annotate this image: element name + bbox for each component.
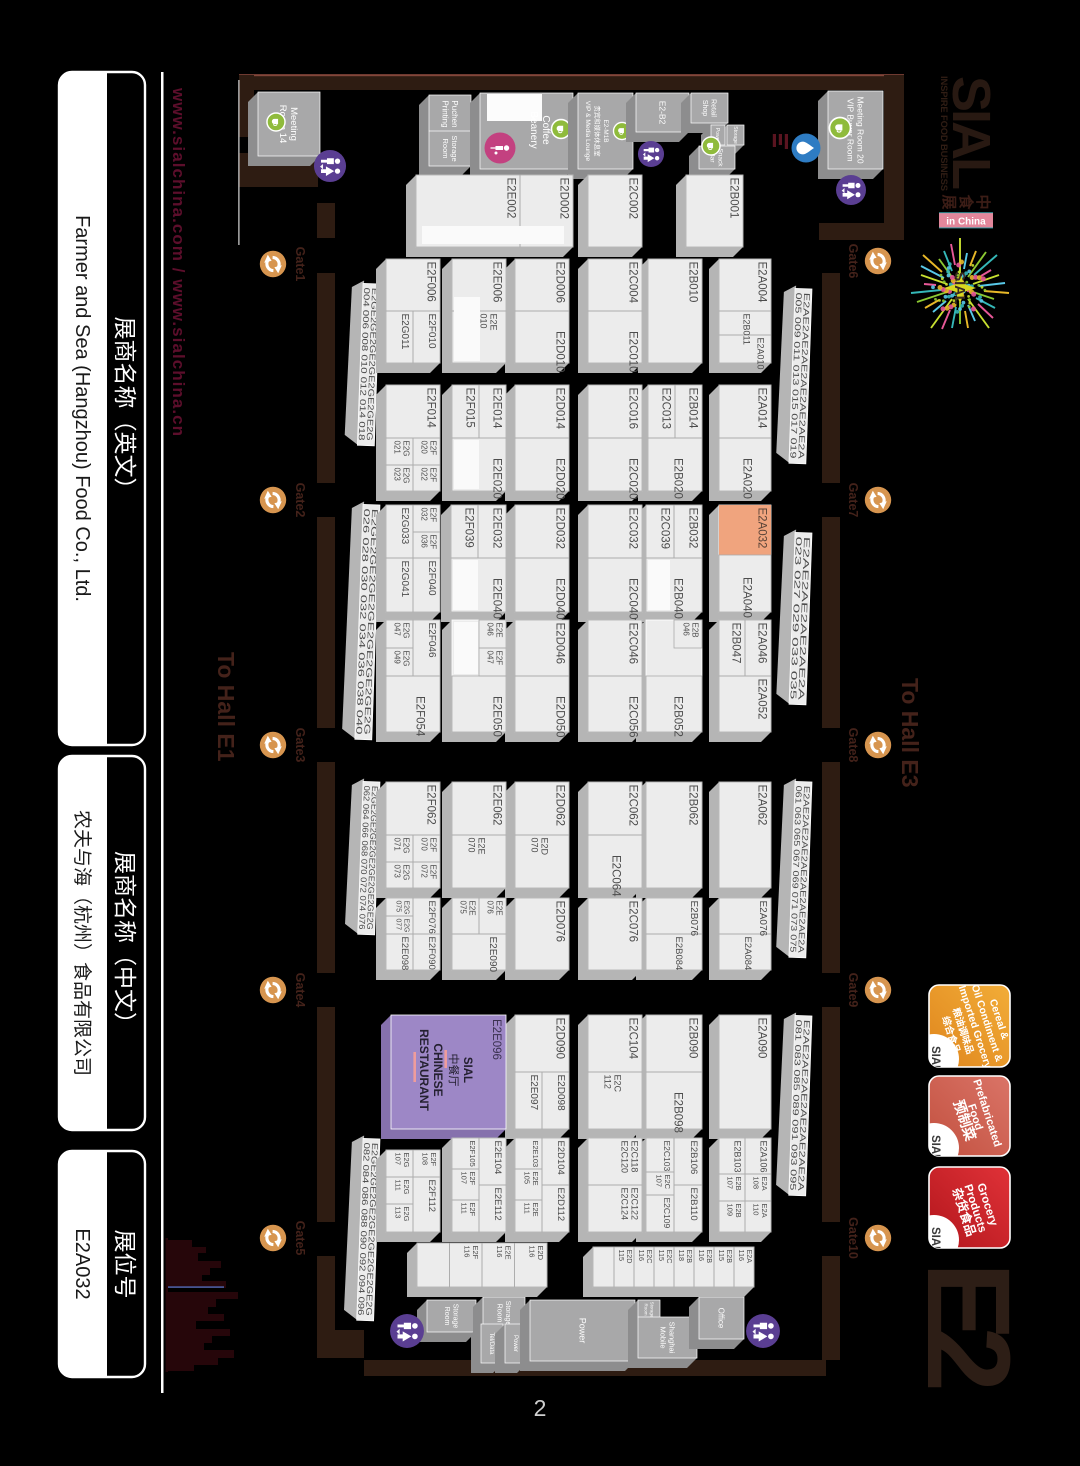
svg-text:E2E098: E2E098 <box>399 937 410 971</box>
svg-text:E2B098: E2B098 <box>672 1092 684 1133</box>
svg-text:SIAL: SIAL <box>951 271 967 304</box>
svg-text:110: 110 <box>751 1204 760 1216</box>
svg-text:E2E040: E2E040 <box>491 578 503 619</box>
svg-text:118: 118 <box>677 1250 686 1261</box>
svg-text:116: 116 <box>462 1246 471 1258</box>
svg-text:E2C040: E2C040 <box>627 578 639 620</box>
svg-text:E2B040: E2B040 <box>672 578 684 619</box>
svg-text:112: 112 <box>603 1075 613 1089</box>
svg-text:E2F039: E2F039 <box>463 508 475 548</box>
svg-text:食: 食 <box>957 194 975 210</box>
svg-text:010: 010 <box>479 314 489 329</box>
svg-text:E2C016: E2C016 <box>627 388 639 430</box>
svg-text:E2D046: E2D046 <box>554 623 566 665</box>
svg-text:070: 070 <box>419 838 428 852</box>
svg-text:E2A014: E2A014 <box>756 388 768 430</box>
svg-text:Gate1: Gate1 <box>293 247 307 282</box>
svg-text:2: 2 <box>534 1395 547 1421</box>
svg-text:Gate7: Gate7 <box>846 483 860 518</box>
svg-text:E2D112: E2D112 <box>555 1188 566 1222</box>
svg-text:023: 023 <box>392 468 401 482</box>
svg-text:020: 020 <box>419 441 428 455</box>
svg-text:E2C122: E2C122 <box>630 1188 640 1221</box>
svg-text:E2G: E2G <box>401 441 410 457</box>
svg-text:E2C076: E2C076 <box>627 901 639 943</box>
svg-text:E2D006: E2D006 <box>554 262 566 304</box>
svg-text:E2F090: E2F090 <box>426 937 437 970</box>
svg-text:E2G041: E2G041 <box>399 561 410 598</box>
svg-text:E2B: E2B <box>690 623 699 638</box>
svg-text:E2E006: E2E006 <box>491 262 503 303</box>
svg-text:E2D020: E2D020 <box>554 458 566 500</box>
svg-text:Power: Power <box>512 1335 518 1352</box>
svg-text:E2E112: E2E112 <box>492 1188 503 1221</box>
svg-text:E2A046: E2A046 <box>756 623 768 664</box>
svg-text:E2F014: E2F014 <box>425 388 437 429</box>
svg-text:E2G033: E2G033 <box>399 508 410 545</box>
svg-text:E2E032: E2E032 <box>491 508 503 549</box>
svg-text:INSPIRE FOOD BUSINESS: INSPIRE FOOD BUSINESS <box>939 76 950 191</box>
svg-text:E2G: E2G <box>401 651 410 667</box>
svg-text:049: 049 <box>392 651 401 665</box>
svg-text:071: 071 <box>392 838 401 852</box>
svg-text:展商名称（英文）: 展商名称（英文） <box>112 317 138 501</box>
svg-text:E2C104: E2C104 <box>627 1018 639 1060</box>
svg-text:VIP & Media Lounge: VIP & Media Lounge <box>584 101 591 162</box>
svg-text:107: 107 <box>725 1177 734 1190</box>
svg-text:Storage: Storage <box>451 1304 458 1329</box>
svg-text:E2E104: E2E104 <box>492 1141 503 1175</box>
svg-text:E2C004: E2C004 <box>627 262 639 304</box>
svg-text:E2G011: E2G011 <box>399 314 410 350</box>
svg-text:Shanghai: Shanghai <box>667 1322 676 1354</box>
svg-text:E2B047: E2B047 <box>730 623 742 664</box>
svg-text:116: 116 <box>737 1250 746 1261</box>
svg-text:展: 展 <box>940 194 957 209</box>
svg-text:E2G: E2G <box>402 901 409 915</box>
svg-text:Room: Room <box>643 1303 648 1315</box>
svg-text:Gate2: Gate2 <box>293 483 307 518</box>
svg-text:021: 021 <box>392 441 401 455</box>
svg-text:E2F: E2F <box>428 468 437 483</box>
svg-text:E2B090: E2B090 <box>687 1018 699 1059</box>
svg-text:E2D076: E2D076 <box>554 901 566 943</box>
svg-text:E2C062: E2C062 <box>627 785 639 827</box>
svg-text:Power: Power <box>577 1318 587 1344</box>
svg-text:Gate8: Gate8 <box>846 728 860 763</box>
svg-text:Gate9: Gate9 <box>846 973 860 1008</box>
svg-text:076: 076 <box>485 901 494 915</box>
svg-text:E2B110: E2B110 <box>688 1188 699 1221</box>
svg-text:E2F046: E2F046 <box>426 623 437 658</box>
svg-text:展商名称（中文）: 展商名称（中文） <box>112 851 138 1035</box>
svg-text:E2E090: E2E090 <box>487 937 498 973</box>
svg-text:Mobile: Mobile <box>658 1326 667 1348</box>
svg-text:E2C046: E2C046 <box>627 623 639 665</box>
svg-text:E2F040: E2F040 <box>426 561 437 596</box>
svg-text:贵宾和媒体休息室: 贵宾和媒体休息室 <box>593 105 602 157</box>
svg-text:E2C010: E2C010 <box>627 331 639 373</box>
svg-text:111: 111 <box>459 1203 468 1214</box>
svg-text:E2B010: E2B010 <box>687 262 699 303</box>
svg-text:Gate4: Gate4 <box>293 973 307 1008</box>
svg-text:CHINESE: CHINESE <box>431 1043 445 1096</box>
svg-text:E2F054: E2F054 <box>414 696 426 737</box>
svg-text:Storage: Storage <box>504 1301 511 1326</box>
svg-text:Retail: Retail <box>709 99 716 117</box>
svg-text:农夫与海（杭州）食品有限公司: 农夫与海（杭州）食品有限公司 <box>71 810 93 1076</box>
svg-text:E2A032: E2A032 <box>71 1228 93 1299</box>
svg-text:075: 075 <box>394 901 401 913</box>
svg-text:E2D090: E2D090 <box>554 1018 566 1060</box>
svg-text:E2D040: E2D040 <box>554 578 566 620</box>
svg-text:E2F112: E2F112 <box>426 1180 437 1213</box>
svg-text:077: 077 <box>394 919 401 931</box>
svg-text:Beanery: Beanery <box>528 111 539 148</box>
svg-text:Shop: Shop <box>701 100 708 116</box>
svg-text:115: 115 <box>657 1250 666 1261</box>
svg-text:E2C064: E2C064 <box>610 855 622 897</box>
svg-text:073: 073 <box>392 865 401 879</box>
svg-text:E2C056: E2C056 <box>627 696 639 738</box>
svg-text:E2E014: E2E014 <box>491 388 503 430</box>
svg-text:E2C: E2C <box>613 1075 623 1093</box>
svg-text:E2C032: E2C032 <box>627 508 639 550</box>
svg-text:116: 116 <box>527 1246 536 1258</box>
svg-text:E2F: E2F <box>428 535 437 550</box>
svg-text:E2C109: E2C109 <box>662 1198 672 1229</box>
svg-text:111: 111 <box>393 1180 402 1191</box>
svg-text:E2D104: E2D104 <box>555 1141 566 1175</box>
svg-text:046: 046 <box>485 623 494 637</box>
svg-text:E2E020: E2E020 <box>491 458 503 499</box>
svg-text:Gate10: Gate10 <box>846 1217 860 1259</box>
svg-text:E2B103: E2B103 <box>733 1141 743 1173</box>
svg-text:070: 070 <box>467 838 477 853</box>
svg-text:E2A084: E2A084 <box>742 937 753 971</box>
svg-text:E2F015: E2F015 <box>464 388 476 428</box>
svg-text:Coffee: Coffee <box>540 115 551 145</box>
svg-text:E2G: E2G <box>401 865 410 881</box>
svg-text:E2-M1B: E2-M1B <box>602 119 609 142</box>
svg-text:E2C120: E2C120 <box>620 1141 630 1174</box>
svg-text:E2E: E2E <box>494 901 503 916</box>
svg-text:E2D: E2D <box>540 838 550 856</box>
svg-text:Storage: Storage <box>732 126 738 144</box>
svg-text:www.sialchina.com / www.sialch: www.sialchina.com / www.sialchina.cn <box>169 87 188 436</box>
svg-text:E2D050: E2D050 <box>554 696 566 738</box>
svg-text:Gate6: Gate6 <box>846 244 860 279</box>
svg-text:116: 116 <box>637 1250 646 1261</box>
svg-text:E2D062: E2D062 <box>554 785 566 827</box>
svg-text:E2E096: E2E096 <box>490 1019 502 1060</box>
svg-text:E2F: E2F <box>428 508 437 523</box>
svg-text:Tel/Data: Tel/Data <box>488 1332 494 1355</box>
svg-text:111: 111 <box>522 1203 531 1214</box>
svg-text:E2E050: E2E050 <box>491 696 503 737</box>
svg-text:E2B001: E2B001 <box>728 178 740 219</box>
svg-text:E2E: E2E <box>494 623 503 638</box>
svg-text:E2D002: E2D002 <box>558 178 570 220</box>
svg-text:E2G: E2G <box>402 919 409 933</box>
svg-text:E2G: E2G <box>401 468 410 484</box>
svg-text:E2D010: E2D010 <box>554 331 566 373</box>
svg-text:E2B106: E2B106 <box>688 1141 699 1175</box>
svg-text:E2B020: E2B020 <box>672 458 684 499</box>
svg-text:036: 036 <box>419 535 428 549</box>
svg-text:RESTAURANT: RESTAURANT <box>417 1029 431 1111</box>
svg-text:047: 047 <box>485 651 494 665</box>
svg-text:Printing: Printing <box>441 100 450 127</box>
svg-text:E2F: E2F <box>428 838 437 853</box>
svg-text:107: 107 <box>654 1175 663 1188</box>
svg-text:Storage: Storage <box>649 1302 654 1318</box>
svg-text:115: 115 <box>617 1250 626 1261</box>
svg-text:E2F006: E2F006 <box>425 262 437 302</box>
svg-text:E2F010: E2F010 <box>426 314 437 349</box>
svg-text:Office: Office <box>717 1308 726 1329</box>
svg-text:E2A062: E2A062 <box>756 785 768 826</box>
svg-text:115: 115 <box>717 1250 726 1261</box>
svg-text:109: 109 <box>725 1204 734 1217</box>
svg-text:E2A040: E2A040 <box>741 577 753 618</box>
svg-text:E2C103: E2C103 <box>662 1141 672 1172</box>
svg-text:E2A076: E2A076 <box>757 901 768 937</box>
svg-text:Room: Room <box>495 1304 502 1323</box>
svg-text:E2C124: E2C124 <box>620 1188 630 1221</box>
svg-text:E2A090: E2A090 <box>756 1018 768 1059</box>
svg-text:Room: Room <box>443 1307 450 1326</box>
svg-text:E2E103: E2E103 <box>531 1141 540 1168</box>
svg-text:E2B062: E2B062 <box>687 785 699 826</box>
svg-text:116: 116 <box>495 1246 504 1258</box>
svg-text:Puchen: Puchen <box>450 100 459 127</box>
svg-text:Gate5: Gate5 <box>293 1221 307 1256</box>
svg-text:046: 046 <box>681 623 690 637</box>
svg-text:E2C118: E2C118 <box>630 1141 640 1173</box>
svg-text:032: 032 <box>419 508 428 522</box>
svg-text:Meeting Room 20: Meeting Room 20 <box>856 96 866 163</box>
svg-text:116: 116 <box>697 1250 706 1261</box>
svg-text:070: 070 <box>530 838 540 853</box>
svg-text:E2B076: E2B076 <box>688 901 699 937</box>
svg-text:E2: E2 <box>902 1262 1034 1392</box>
svg-text:E2B052: E2B052 <box>672 696 684 737</box>
svg-text:E2C039: E2C039 <box>659 508 671 550</box>
svg-text:E2F: E2F <box>428 441 437 456</box>
svg-text:E2A004: E2A004 <box>756 262 768 304</box>
svg-text:中: 中 <box>974 194 992 209</box>
svg-text:E2D032: E2D032 <box>554 508 566 550</box>
svg-text:展位号: 展位号 <box>112 1230 138 1299</box>
svg-text:022: 022 <box>419 468 428 482</box>
svg-text:中餐厅: 中餐厅 <box>447 1054 461 1087</box>
svg-text:E2E: E2E <box>467 901 476 916</box>
svg-text:E2D098: E2D098 <box>555 1075 566 1112</box>
svg-text:E2B032: E2B032 <box>687 508 699 549</box>
svg-text:E2F062: E2F062 <box>425 785 437 825</box>
svg-text:E2C020: E2C020 <box>627 458 639 500</box>
svg-text:To Hall E1: To Hall E1 <box>213 652 239 762</box>
svg-text:047: 047 <box>392 623 401 637</box>
svg-text:113: 113 <box>393 1207 402 1219</box>
svg-text:Room: Room <box>441 138 450 158</box>
svg-text:E2E: E2E <box>477 838 487 855</box>
svg-text:072: 072 <box>419 865 428 879</box>
svg-text:Meeting: Meeting <box>288 107 299 141</box>
svg-text:107: 107 <box>459 1172 468 1185</box>
svg-text:108: 108 <box>420 1153 429 1166</box>
svg-text:E2A020: E2A020 <box>741 458 753 499</box>
svg-text:E2A106: E2A106 <box>759 1141 769 1173</box>
svg-text:E2F: E2F <box>494 651 503 666</box>
svg-text:E2E062: E2E062 <box>491 785 503 826</box>
svg-text:E2C002: E2C002 <box>627 178 639 220</box>
svg-text:E2F: E2F <box>428 865 437 880</box>
svg-text:105: 105 <box>522 1172 531 1185</box>
svg-text:E2A052: E2A052 <box>756 679 768 720</box>
svg-text:Gate3: Gate3 <box>293 728 307 763</box>
svg-text:E2E097: E2E097 <box>528 1075 539 1111</box>
svg-text:107: 107 <box>393 1153 402 1166</box>
svg-text:E2A010: E2A010 <box>756 338 766 370</box>
svg-text:E2B084: E2B084 <box>673 937 684 971</box>
svg-text:E2F076: E2F076 <box>426 901 437 934</box>
svg-text:Storage: Storage <box>450 135 459 161</box>
svg-text:E2A032: E2A032 <box>756 508 768 549</box>
svg-text:E2F105: E2F105 <box>468 1141 477 1167</box>
svg-text:E2G: E2G <box>401 838 410 854</box>
svg-text:E2G: E2G <box>401 623 410 639</box>
svg-text:E2E: E2E <box>489 314 499 331</box>
svg-text:To Hall E3: To Hall E3 <box>897 678 923 788</box>
svg-text:SIAL: SIAL <box>461 1057 473 1083</box>
svg-text:E2B014: E2B014 <box>687 388 699 430</box>
svg-text:E2C013: E2C013 <box>660 388 672 430</box>
svg-text:in China: in China <box>946 217 986 228</box>
svg-text:E2-B2: E2-B2 <box>658 101 668 125</box>
svg-text:108: 108 <box>751 1177 760 1190</box>
svg-text:E2D014: E2D014 <box>554 388 566 430</box>
svg-text:E2E002: E2E002 <box>505 178 517 219</box>
svg-text:075: 075 <box>458 901 467 915</box>
svg-text:Farmer and Sea (Hangzhou) Food: Farmer and Sea (Hangzhou) Food Co., Ltd. <box>71 215 93 602</box>
svg-text:E2B011: E2B011 <box>742 314 752 345</box>
